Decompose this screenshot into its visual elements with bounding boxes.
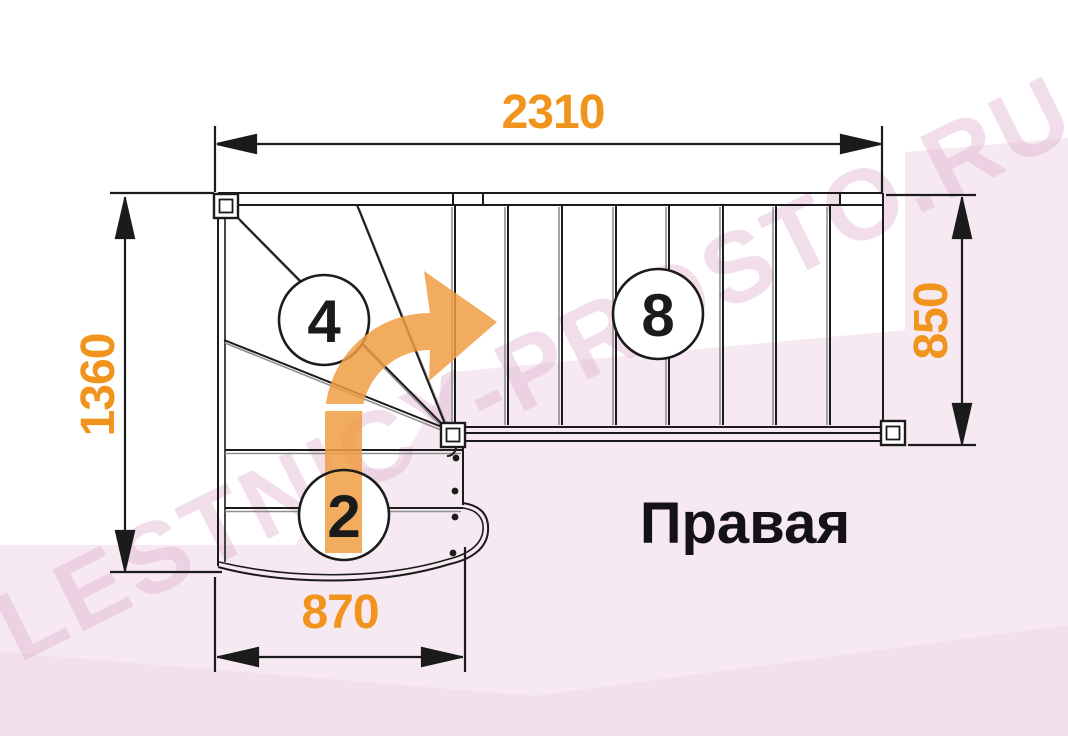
upper-step-count: 8 bbox=[641, 286, 674, 346]
post-corner bbox=[441, 423, 465, 447]
dimension-arrowhead bbox=[116, 531, 134, 570]
dimension-left bbox=[110, 193, 222, 572]
dimension-arrowhead bbox=[422, 648, 461, 666]
post-bottom-right bbox=[881, 421, 905, 445]
dimension-label-top: 2310 bbox=[502, 89, 605, 137]
dimension-label-bottom: 870 bbox=[301, 589, 378, 637]
staircase-plan-screenshot: LESTNICY-PROSTO.RU bbox=[0, 0, 1068, 736]
lower-step-count: 2 bbox=[327, 487, 360, 547]
winder-step-count: 4 bbox=[307, 292, 340, 352]
dimension-arrowhead bbox=[116, 199, 134, 238]
staircase-type-title: Правая bbox=[640, 495, 850, 553]
dimension-arrowhead bbox=[217, 135, 256, 153]
dimension-arrowhead bbox=[953, 404, 971, 443]
dimension-arrowhead bbox=[219, 648, 258, 666]
bottom-stringer bbox=[447, 427, 881, 441]
dimension-arrowhead bbox=[953, 199, 971, 238]
dimension-label-left: 1360 bbox=[75, 334, 123, 437]
dimension-label-right: 850 bbox=[908, 282, 956, 359]
baluster-dots bbox=[450, 455, 460, 557]
dimension-lines bbox=[110, 126, 976, 672]
newel-corner-round bbox=[447, 447, 456, 456]
post-top-left bbox=[214, 194, 238, 218]
arrow-tail-gap bbox=[322, 404, 365, 411]
dimension-arrowhead bbox=[841, 135, 880, 153]
top-stringer bbox=[218, 193, 883, 205]
